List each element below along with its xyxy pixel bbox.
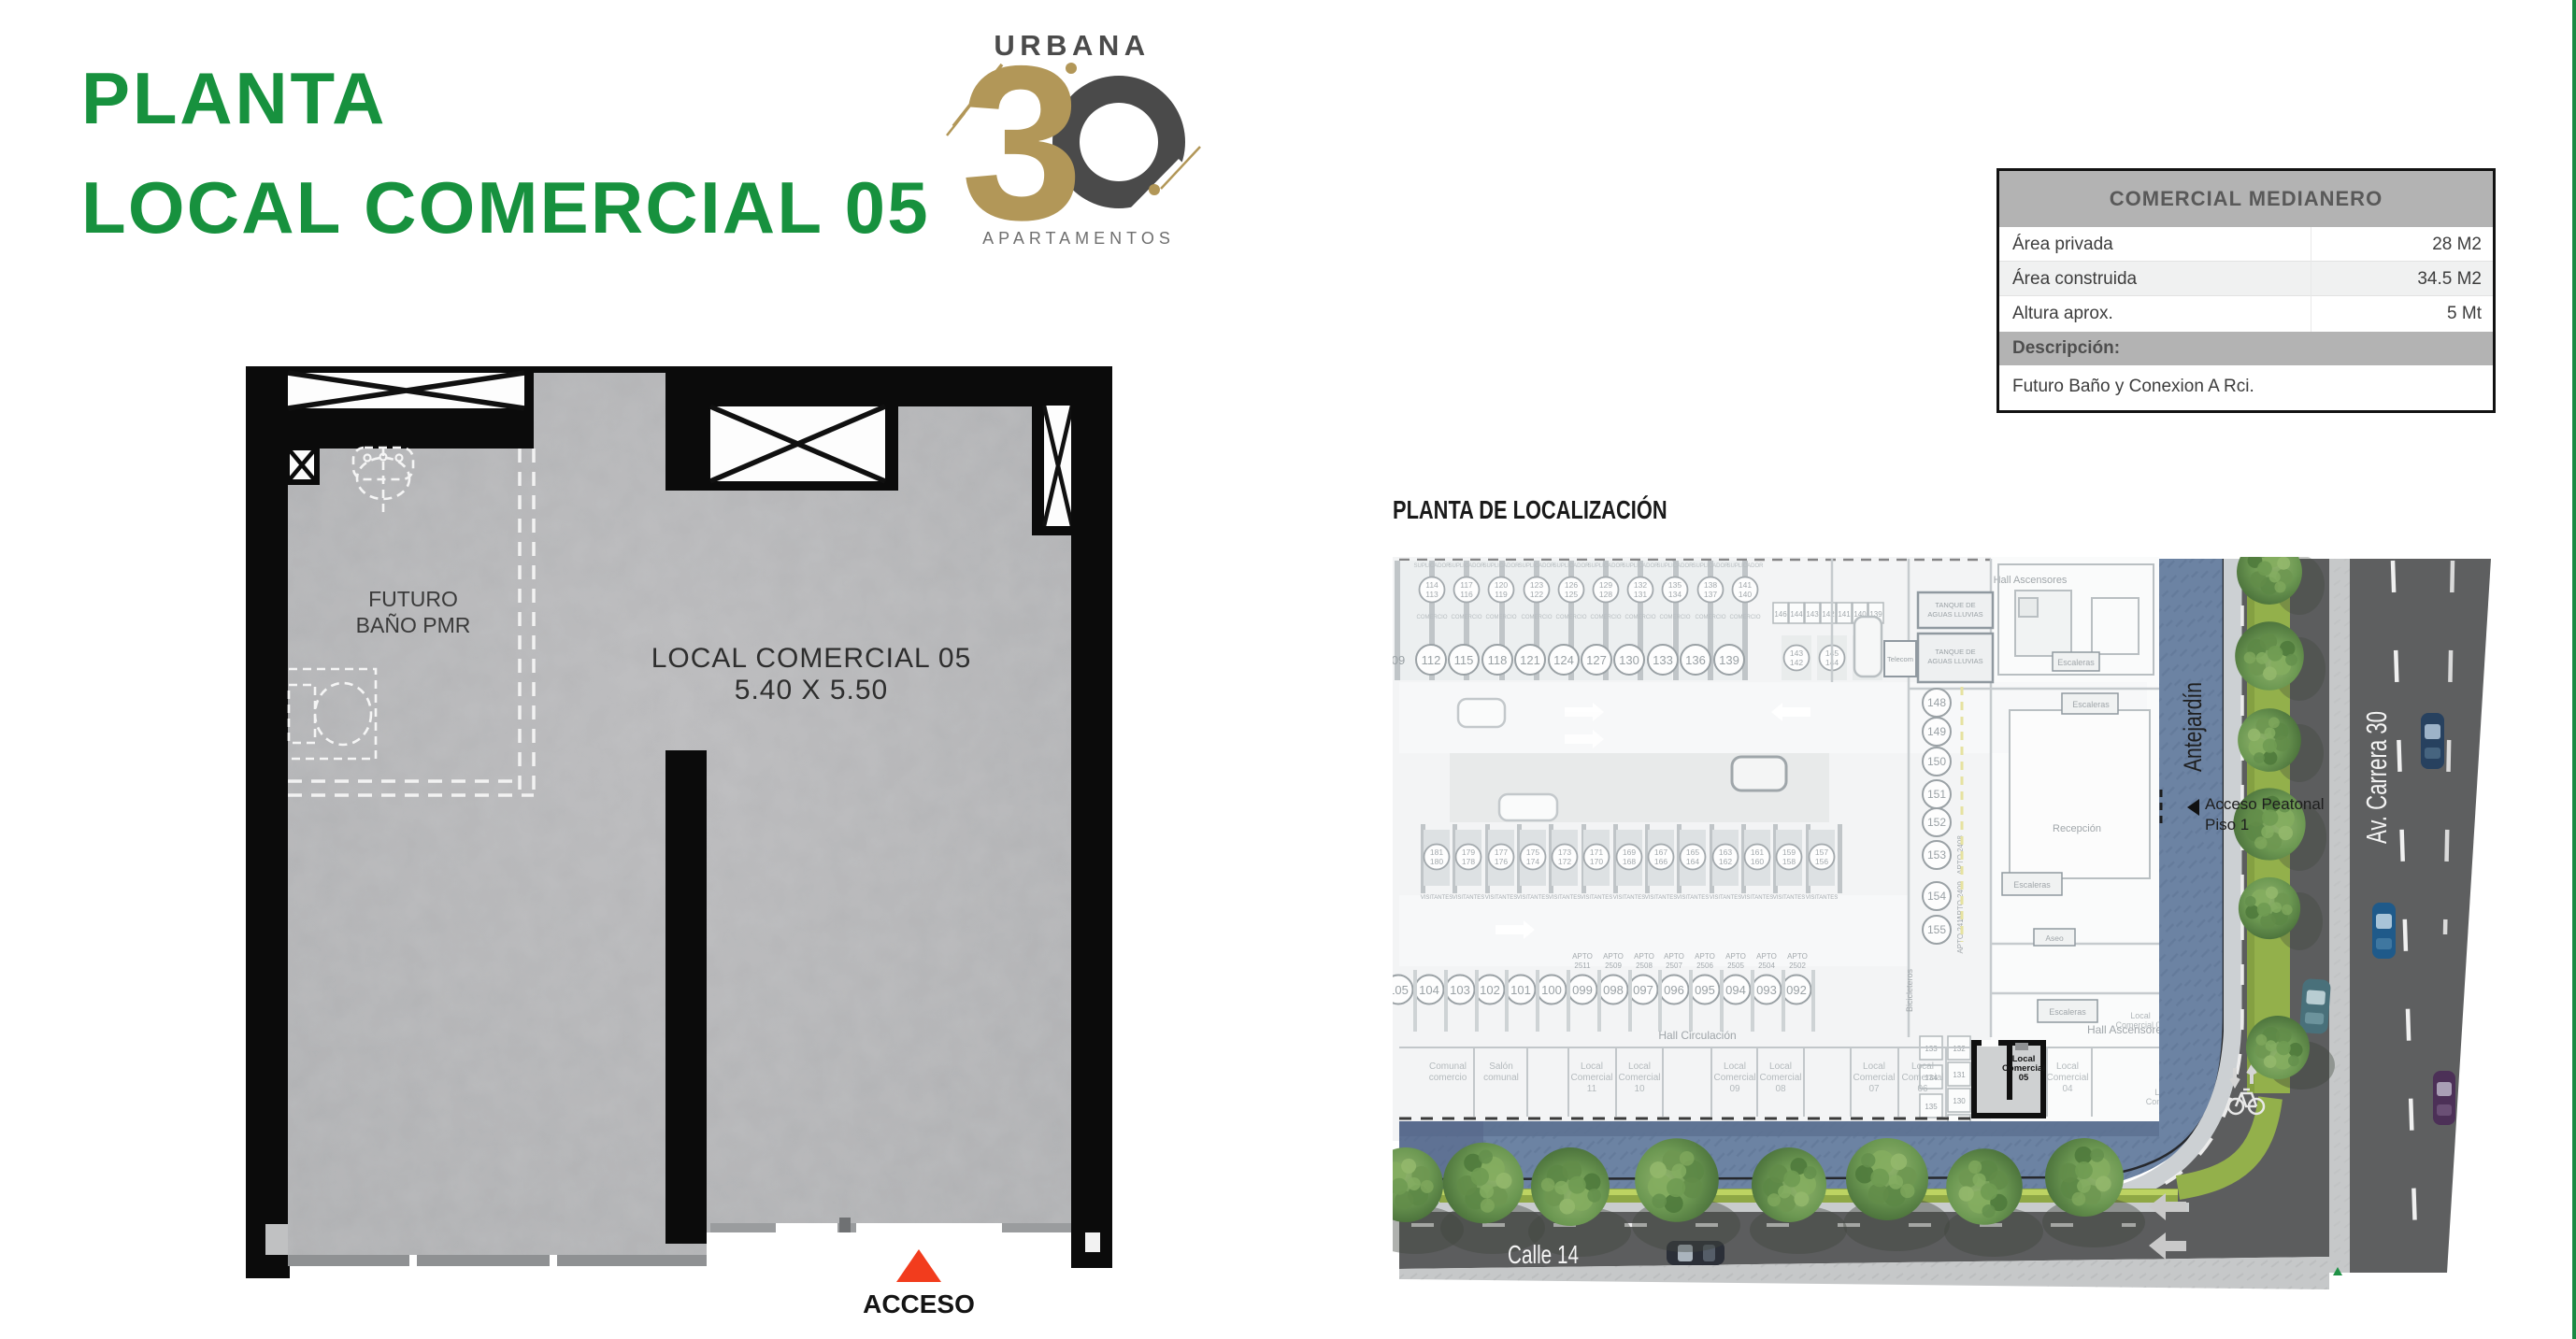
svg-text:Telecom: Telecom	[1887, 655, 1913, 663]
svg-text:143: 143	[1806, 610, 1819, 619]
svg-text:Escaleras: Escaleras	[2049, 1007, 2086, 1017]
svg-text:09: 09	[1729, 1084, 1740, 1094]
svg-text:130: 130	[1953, 1097, 1966, 1105]
svg-text:2504: 2504	[1758, 962, 1775, 970]
svg-text:SUPLICADOR: SUPLICADOR	[1587, 563, 1624, 569]
svg-text:125: 125	[1565, 590, 1578, 599]
svg-text:SUPLICADOR: SUPLICADOR	[1482, 563, 1520, 569]
svg-text:Local: Local	[2056, 1061, 2079, 1072]
svg-text:136: 136	[1685, 653, 1706, 667]
svg-text:170: 170	[1590, 857, 1603, 866]
svg-text:127: 127	[1586, 653, 1607, 667]
svg-text:132: 132	[1953, 1045, 1966, 1053]
svg-text:105: 105	[1388, 983, 1409, 997]
svg-text:VISITANTES: VISITANTES	[1613, 895, 1646, 901]
svg-text:VISITANTES: VISITANTES	[1453, 895, 1485, 901]
svg-text:AGUAS LLUVIAS: AGUAS LLUVIAS	[1927, 657, 1982, 665]
svg-text:176: 176	[1495, 857, 1508, 866]
svg-text:Antejardín: Antejardín	[2179, 682, 2207, 772]
svg-text:Local: Local	[1863, 1061, 1885, 1072]
svg-text:2511: 2511	[1574, 962, 1591, 970]
svg-text:160: 160	[1751, 857, 1764, 866]
svg-text:Local: Local	[2130, 1011, 2151, 1020]
svg-text:2505: 2505	[1727, 962, 1744, 970]
svg-text:APTO: APTO	[1787, 952, 1808, 961]
svg-text:06: 06	[1917, 1084, 1928, 1094]
svg-text:COMERCIO: COMERCIO	[1486, 615, 1517, 620]
svg-text:112: 112	[1422, 653, 1441, 667]
svg-text:VISITANTES: VISITANTES	[1421, 895, 1453, 901]
svg-text:100: 100	[1541, 983, 1562, 997]
svg-text:095: 095	[1695, 983, 1715, 997]
svg-text:Comercial: Comercial	[1853, 1073, 1895, 1083]
svg-text:142: 142	[1790, 658, 1803, 667]
svg-text:Local: Local	[1911, 1061, 1934, 1072]
svg-text:131: 131	[1634, 590, 1647, 599]
svg-text:VISITANTES: VISITANTES	[1806, 895, 1839, 901]
svg-text:099: 099	[1572, 983, 1593, 997]
svg-text:171: 171	[1590, 848, 1603, 857]
svg-text:07: 07	[1868, 1084, 1880, 1094]
svg-text:SUPLICADOR: SUPLICADOR	[1726, 563, 1764, 569]
svg-text:150: 150	[1927, 755, 1946, 768]
svg-text:155: 155	[1927, 923, 1946, 936]
svg-text:Escaleras: Escaleras	[2013, 880, 2051, 890]
svg-text:117: 117	[1460, 580, 1473, 590]
svg-text:141: 141	[1838, 610, 1851, 619]
svg-text:133: 133	[1925, 1045, 1938, 1053]
svg-text:102: 102	[1480, 983, 1500, 997]
svg-text:173: 173	[1558, 848, 1571, 857]
svg-text:VISITANTES: VISITANTES	[1773, 895, 1806, 901]
svg-text:177: 177	[1495, 848, 1508, 857]
svg-text:SUPLICADOR: SUPLICADOR	[1553, 563, 1590, 569]
svg-text:Escaleras: Escaleras	[2072, 700, 2110, 709]
svg-text:133: 133	[1653, 653, 1673, 667]
svg-text:179: 179	[1462, 848, 1475, 857]
svg-text:169: 169	[1623, 848, 1636, 857]
svg-text:Comercial: Comercial	[1759, 1073, 1801, 1083]
svg-text:TANQUE DE: TANQUE DE	[1935, 648, 1975, 656]
svg-text:Local: Local	[1769, 1061, 1792, 1072]
svg-text:175: 175	[1526, 848, 1539, 857]
svg-text:094: 094	[1725, 983, 1746, 997]
svg-text:SUPLICADOR: SUPLICADOR	[1413, 563, 1451, 569]
svg-text:166: 166	[1654, 857, 1667, 866]
svg-text:135: 135	[1668, 580, 1682, 590]
svg-text:122: 122	[1530, 590, 1543, 599]
svg-text:Bicicleteros: Bicicleteros	[1905, 968, 1914, 1012]
svg-text:Recepción: Recepción	[2053, 823, 2101, 834]
svg-text:09: 09	[1392, 653, 1405, 667]
svg-text:COMERCIO: COMERCIO	[1556, 615, 1587, 620]
svg-text:158: 158	[1782, 857, 1796, 866]
svg-text:Salón: Salón	[1489, 1061, 1513, 1072]
svg-text:2508: 2508	[1636, 962, 1653, 970]
svg-text:SUPLICADOR: SUPLICADOR	[1448, 563, 1485, 569]
svg-text:08: 08	[1775, 1084, 1786, 1094]
svg-text:Comercial: Comercial	[1901, 1073, 1943, 1083]
svg-text:TANQUE DE: TANQUE DE	[1935, 601, 1975, 609]
svg-text:096: 096	[1664, 983, 1684, 997]
svg-text:174: 174	[1526, 857, 1539, 866]
svg-text:comunal: comunal	[1483, 1073, 1519, 1083]
svg-text:Comercial: Comercial	[1618, 1073, 1660, 1083]
svg-text:123: 123	[1530, 580, 1543, 590]
svg-text:154: 154	[1927, 890, 1946, 903]
svg-text:149: 149	[1927, 725, 1946, 738]
svg-text:118: 118	[1488, 653, 1508, 667]
svg-text:092: 092	[1786, 983, 1807, 997]
svg-text:131: 131	[1953, 1071, 1966, 1079]
svg-text:APTO: APTO	[1634, 952, 1654, 961]
svg-text:COMERCIO: COMERCIO	[1522, 615, 1553, 620]
svg-text:2509: 2509	[1605, 962, 1622, 970]
svg-text:146: 146	[1774, 610, 1787, 619]
svg-text:116: 116	[1460, 590, 1473, 599]
svg-text:134: 134	[1668, 590, 1682, 599]
svg-text:COMERCIO: COMERCIO	[1696, 615, 1726, 620]
svg-text:163: 163	[1719, 848, 1732, 857]
svg-text:101: 101	[1510, 983, 1531, 997]
svg-text:104: 104	[1419, 983, 1439, 997]
svg-text:AGUAS LLUVIAS: AGUAS LLUVIAS	[1927, 610, 1982, 619]
svg-text:VISITANTES: VISITANTES	[1517, 895, 1550, 901]
svg-text:VISITANTES: VISITANTES	[1581, 895, 1613, 901]
svg-text:164: 164	[1686, 857, 1699, 866]
svg-text:SUPLICADOR: SUPLICADOR	[1692, 563, 1729, 569]
svg-text:COMERCIO: COMERCIO	[1452, 615, 1482, 620]
svg-text:161: 161	[1751, 848, 1764, 857]
svg-text:144: 144	[1790, 610, 1803, 619]
svg-text:Piso 1: Piso 1	[2205, 816, 2249, 833]
svg-text:168: 168	[1623, 857, 1636, 866]
svg-text:165: 165	[1686, 848, 1699, 857]
svg-text:132: 132	[1634, 580, 1647, 590]
svg-text:SUPLICADOR: SUPLICADOR	[1622, 563, 1659, 569]
svg-text:156: 156	[1815, 857, 1828, 866]
svg-text:151: 151	[1927, 788, 1946, 801]
svg-text:103: 103	[1450, 983, 1470, 997]
svg-text:148: 148	[1927, 696, 1946, 709]
svg-text:140: 140	[1739, 590, 1752, 599]
svg-text:2506: 2506	[1696, 962, 1713, 970]
svg-text:APTO: APTO	[1725, 952, 1746, 961]
svg-text:Comunal: Comunal	[1429, 1061, 1467, 1072]
svg-text:098: 098	[1603, 983, 1624, 997]
svg-text:115: 115	[1454, 653, 1474, 667]
svg-text:141: 141	[1739, 580, 1752, 590]
svg-text:Hall Ascensores: Hall Ascensores	[1994, 575, 2068, 586]
svg-text:Comercial: Comercial	[1713, 1073, 1755, 1083]
svg-text:Aseo: Aseo	[2045, 933, 2064, 943]
svg-text:APTO: APTO	[1572, 952, 1593, 961]
svg-text:VISITANTES: VISITANTES	[1485, 895, 1518, 901]
svg-text:VISITANTES: VISITANTES	[1645, 895, 1678, 901]
svg-text:Comercial: Comercial	[2046, 1073, 2088, 1083]
svg-text:COMERCIO: COMERCIO	[1417, 615, 1448, 620]
svg-text:Local: Local	[1628, 1061, 1651, 1072]
svg-text:180: 180	[1430, 857, 1443, 866]
svg-text:137: 137	[1704, 590, 1717, 599]
svg-text:VISITANTES: VISITANTES	[1677, 895, 1710, 901]
svg-text:114: 114	[1425, 580, 1438, 590]
svg-text:Acceso Peatonal: Acceso Peatonal	[2205, 795, 2325, 813]
svg-text:167: 167	[1654, 848, 1667, 857]
svg-text:2507: 2507	[1666, 962, 1682, 970]
svg-text:126: 126	[1565, 580, 1578, 590]
svg-text:Av. Carrera 30: Av. Carrera 30	[2360, 711, 2393, 844]
svg-text:VISITANTES: VISITANTES	[1741, 895, 1774, 901]
svg-text:SUPLICADOR: SUPLICADOR	[1656, 563, 1694, 569]
svg-text:128: 128	[1599, 590, 1612, 599]
svg-text:157: 157	[1815, 848, 1828, 857]
svg-text:159: 159	[1782, 848, 1796, 857]
svg-text:138: 138	[1704, 580, 1717, 590]
svg-text:APTO: APTO	[1695, 952, 1715, 961]
svg-text:124: 124	[1553, 653, 1574, 667]
svg-text:COMERCIO: COMERCIO	[1660, 615, 1691, 620]
svg-text:SUPLICADOR: SUPLICADOR	[1518, 563, 1555, 569]
svg-text:Local: Local	[1724, 1061, 1746, 1072]
svg-text:172: 172	[1558, 857, 1571, 866]
svg-text:097: 097	[1633, 983, 1653, 997]
svg-text:VISITANTES: VISITANTES	[1710, 895, 1742, 901]
svg-text:Hall Circulación: Hall Circulación	[1658, 1029, 1736, 1042]
svg-text:152: 152	[1927, 816, 1946, 829]
svg-text:COMERCIO: COMERCIO	[1730, 615, 1761, 620]
svg-text:130: 130	[1619, 653, 1639, 667]
svg-text:153: 153	[1927, 848, 1946, 862]
svg-text:129: 129	[1599, 580, 1612, 590]
svg-text:121: 121	[1520, 653, 1540, 667]
svg-text:comercio: comercio	[1429, 1073, 1467, 1083]
svg-text:04: 04	[2062, 1084, 2073, 1094]
svg-text:11: 11	[1587, 1084, 1597, 1094]
svg-text:178: 178	[1462, 857, 1475, 866]
svg-text:143: 143	[1790, 648, 1803, 658]
svg-text:113: 113	[1425, 590, 1438, 599]
svg-text:APTO: APTO	[1603, 952, 1624, 961]
svg-text:181: 181	[1430, 848, 1443, 857]
svg-text:Calle 14: Calle 14	[1508, 1240, 1579, 1269]
svg-text:Comercial: Comercial	[1570, 1073, 1612, 1083]
svg-text:05: 05	[2019, 1073, 2029, 1083]
svg-text:2502: 2502	[1789, 962, 1806, 970]
svg-text:135: 135	[1925, 1103, 1938, 1111]
svg-text:10: 10	[1634, 1084, 1645, 1094]
svg-text:Escaleras: Escaleras	[2057, 658, 2095, 667]
svg-text:162: 162	[1719, 857, 1732, 866]
svg-text:APTO: APTO	[1756, 952, 1777, 961]
svg-text:APTO: APTO	[1664, 952, 1684, 961]
svg-text:Local: Local	[1581, 1061, 1603, 1072]
svg-text:119: 119	[1495, 590, 1508, 599]
svg-text:093: 093	[1756, 983, 1777, 997]
svg-text:COMERCIO: COMERCIO	[1591, 615, 1622, 620]
svg-text:VISITANTES: VISITANTES	[1549, 895, 1581, 901]
svg-text:120: 120	[1495, 580, 1508, 590]
svg-text:COMERCIO: COMERCIO	[1625, 615, 1656, 620]
svg-text:139: 139	[1719, 653, 1739, 667]
svg-text:Hall Ascensores: Hall Ascensores	[2087, 1023, 2168, 1036]
